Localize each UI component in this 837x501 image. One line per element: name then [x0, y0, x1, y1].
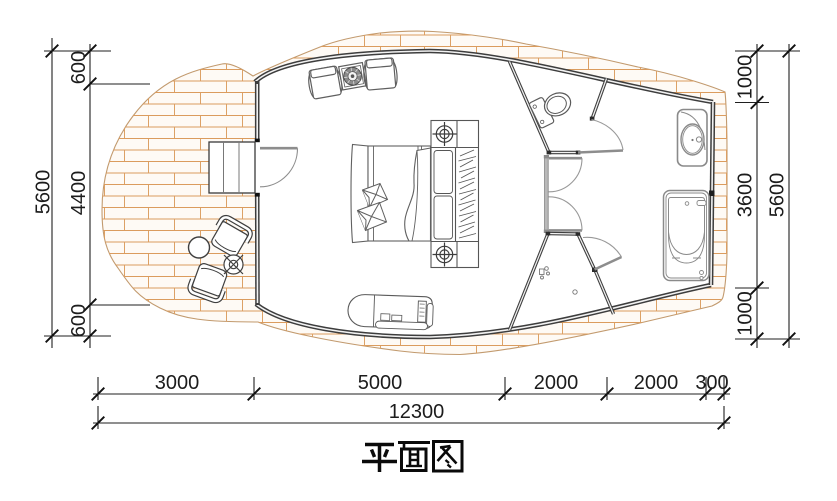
svg-text:3600: 3600 [735, 173, 757, 218]
svg-text:2000: 2000 [534, 372, 579, 394]
svg-text:5000: 5000 [358, 372, 403, 394]
svg-text:600: 600 [68, 51, 90, 84]
svg-text:3000: 3000 [155, 372, 200, 394]
svg-text:5600: 5600 [767, 173, 789, 218]
svg-text:5600: 5600 [33, 170, 55, 215]
svg-text:1000: 1000 [735, 291, 757, 336]
svg-text:1000: 1000 [735, 55, 757, 100]
svg-text:600: 600 [68, 304, 90, 337]
svg-text:2000: 2000 [634, 372, 679, 394]
svg-text:12300: 12300 [389, 401, 445, 423]
svg-text:4400: 4400 [68, 171, 90, 216]
svg-text:300: 300 [695, 372, 728, 394]
